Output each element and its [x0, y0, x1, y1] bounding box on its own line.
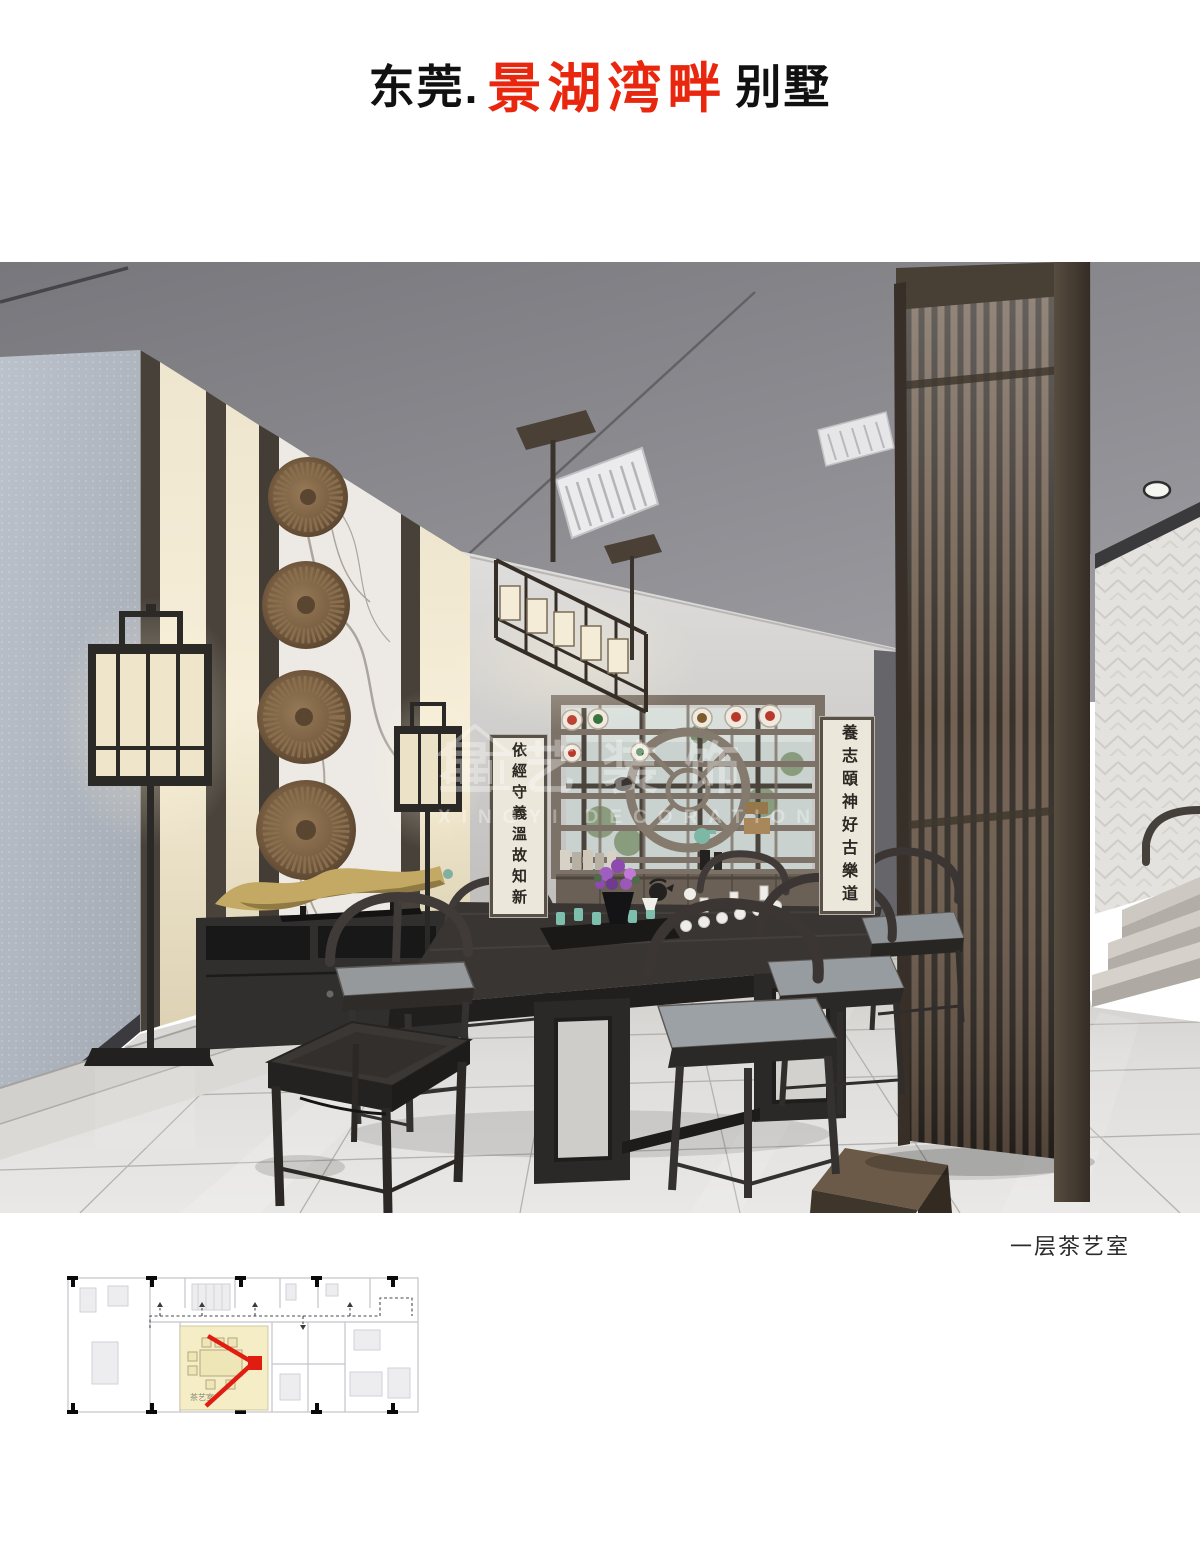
- title-city: 东莞.: [369, 51, 480, 117]
- calligraphy-scroll-left: 依經守義溫故知新: [490, 735, 547, 917]
- presentation-page: { "page": { "title": { "prefix": "东莞.", …: [0, 0, 1200, 1541]
- photo-caption: 一层茶艺室: [1010, 1229, 1130, 1261]
- plan-circulation-path: [150, 1298, 412, 1328]
- page-title: 东莞. 景湖湾畔 别墅: [0, 44, 1200, 123]
- hallway: [1092, 502, 1200, 1007]
- floor-plan-drawing: 茶艺室: [50, 1264, 434, 1440]
- interior-rendering: 依經守義溫故知新 養志頤神好古樂道 星艺装饰 XINGYI DECORATION: [0, 262, 1200, 1213]
- title-project-name: 景湖湾畔: [487, 44, 727, 123]
- title-suffix: 别墅: [735, 51, 831, 117]
- screen-post: [1054, 262, 1090, 1202]
- floor-plan: 茶艺室: [50, 1264, 434, 1440]
- calligraphy-scroll-right: 養志頤神好古樂道: [820, 717, 874, 914]
- interior-scene: [0, 262, 1200, 1213]
